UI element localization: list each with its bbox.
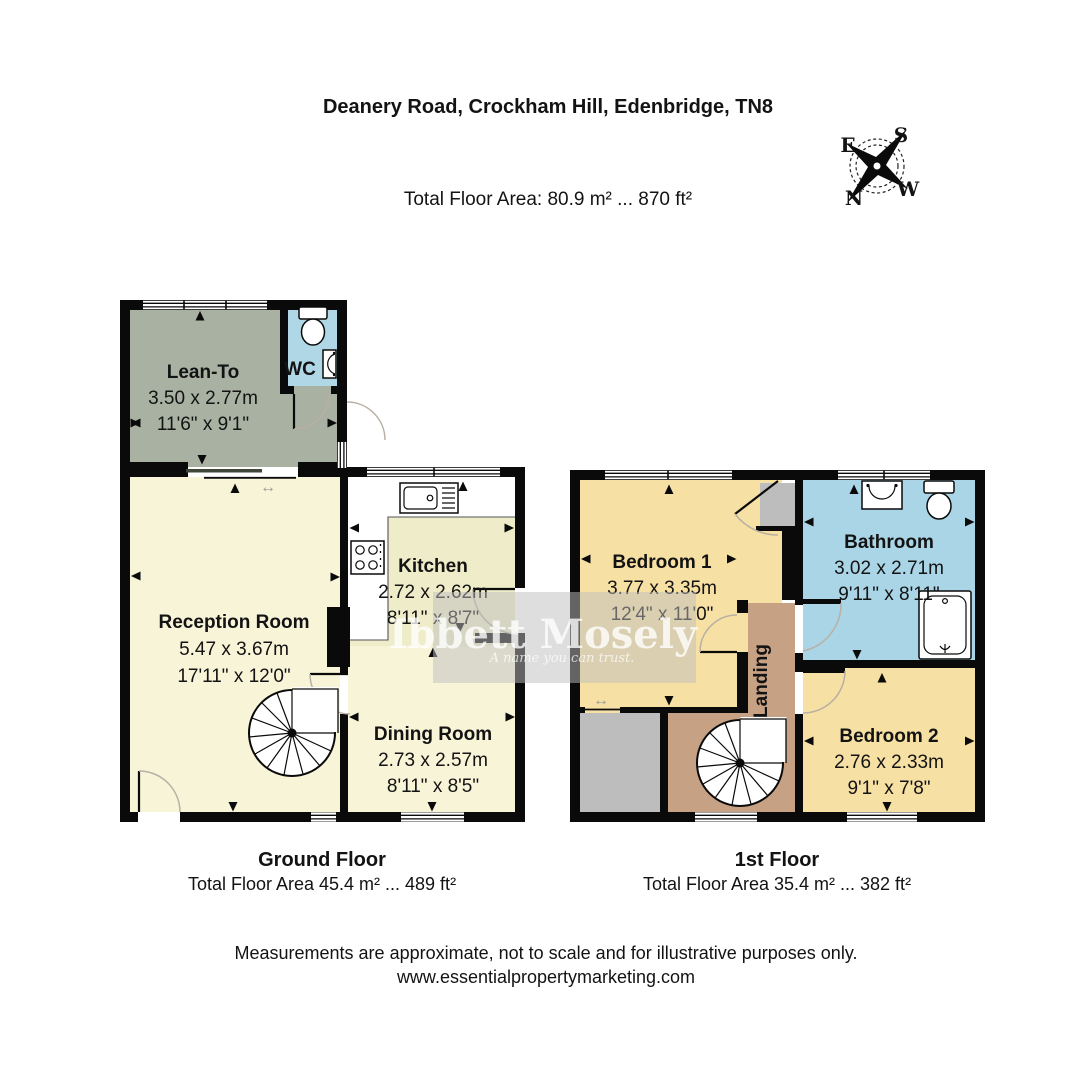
chimney-breast-ground (327, 607, 350, 667)
kitchen-sink-icon (400, 483, 458, 513)
watermark: Ibbett Mosely A name you can trust. (389, 592, 699, 683)
room-label-landing: Landing (751, 644, 772, 718)
room-dim-metric: 5.47 x 3.67m (179, 639, 289, 660)
compass-s: S (894, 123, 908, 147)
window-bedroom1-top (605, 471, 732, 479)
room-dim-imperial: 9'1" x 7'8" (847, 778, 930, 799)
window-bathroom-top (838, 471, 930, 479)
room-label-lean-to: Lean-To (167, 362, 239, 383)
compass-w: W (896, 177, 920, 201)
ground-floor-area: Total Floor Area 45.4 m² ... 489 ft² (188, 874, 456, 894)
sliding-door-arrow-icon: ↔ (260, 479, 276, 496)
room-label-bedroom2: Bedroom 2 (839, 726, 938, 747)
room-dim-imperial: 17'11" x 12'0" (177, 666, 290, 687)
stove-icon (351, 541, 384, 574)
room-label-kitchen: Kitchen (398, 556, 468, 577)
room-label-bathroom: Bathroom (844, 532, 934, 553)
first-floor-heading: 1st Floor (735, 849, 820, 871)
floorplan-page: Deanery Road, Crockham Hill, Edenbridge,… (0, 0, 1092, 1080)
window-reception-bottom (311, 812, 336, 821)
room-dim-imperial: 9'11" x 8'11" (838, 584, 939, 605)
toilet-icon-wc (299, 307, 327, 345)
first-floor-area: Total Floor Area 35.4 m² ... 382 ft² (643, 874, 911, 894)
door-entrance-side (347, 402, 385, 440)
room-dim-imperial: 8'11" x 8'5" (387, 776, 479, 797)
room-label-dining: Dining Room (374, 724, 492, 745)
window-dining-bottom (401, 812, 464, 821)
watermark-tagline: A name you can trust. (489, 651, 635, 666)
room-dim-metric: 3.50 x 2.77m (148, 388, 258, 409)
room-dim-metric: 2.76 x 2.33m (834, 752, 944, 773)
website-url: www.essentialpropertymarketing.com (396, 967, 695, 987)
room-label-reception: Reception Room (159, 612, 310, 633)
ground-floor-heading: Ground Floor (258, 849, 386, 871)
sink-icon-bathroom (862, 481, 902, 509)
window-landing-bottom (695, 812, 757, 821)
compass-e: E (840, 133, 855, 157)
page-title: Deanery Road, Crockham Hill, Edenbridge,… (323, 96, 773, 118)
flat-roof-block (580, 713, 660, 812)
room-label-wc: WC (284, 359, 316, 380)
window-lean-to-top (143, 301, 267, 309)
compass-n: N (845, 186, 863, 210)
window-kitchen-top (367, 468, 500, 476)
kitchen-counter-left (348, 517, 388, 640)
floorplan-canvas: Deanery Road, Crockham Hill, Edenbridge,… (0, 0, 1092, 1080)
compass-rose-icon: E S N W (840, 123, 919, 210)
room-label-bedroom1: Bedroom 1 (612, 552, 712, 573)
room-dim-imperial: 11'6" x 9'1" (157, 414, 249, 435)
room-dim-metric: 2.73 x 2.57m (378, 750, 488, 771)
disclaimer-text: Measurements are approximate, not to sca… (235, 943, 858, 963)
window-bedroom2-bottom (847, 812, 917, 821)
room-dim-metric: 3.02 x 2.71m (834, 558, 944, 579)
ground-floor-plan: ↔ (120, 300, 525, 822)
sliding-door-arrow-icon: ↔ (593, 692, 609, 709)
total-floor-area: Total Floor Area: 80.9 m² ... 870 ft² (404, 189, 692, 210)
toilet-icon-bathroom (924, 481, 954, 519)
sink-icon-wc (323, 350, 336, 378)
window-hall-right (338, 442, 346, 468)
